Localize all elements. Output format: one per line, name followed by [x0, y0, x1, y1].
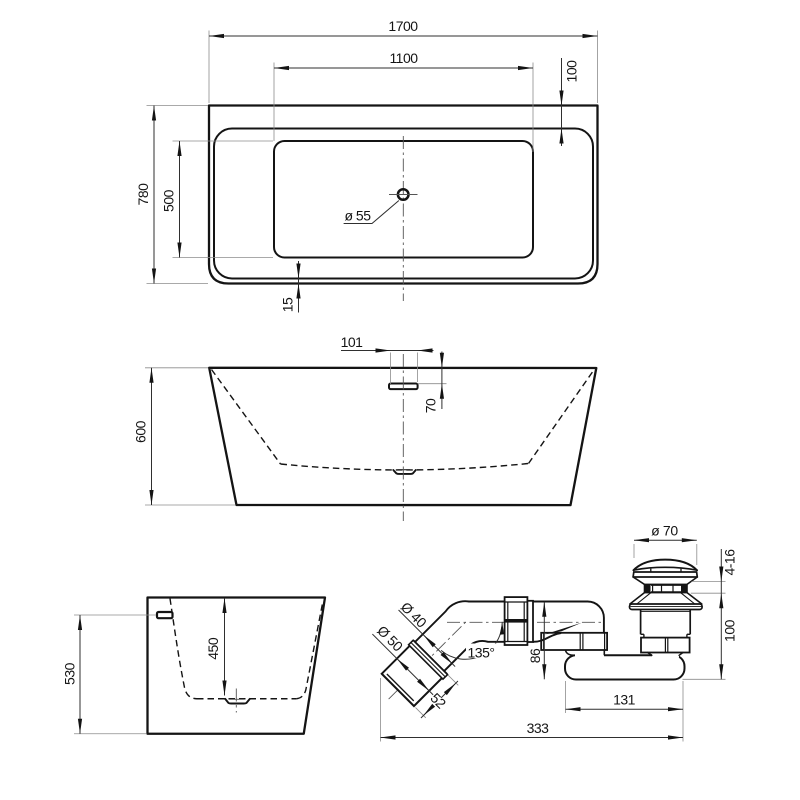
svg-text:780: 780	[135, 183, 151, 206]
svg-text:15: 15	[280, 297, 296, 312]
svg-text:333: 333	[527, 720, 550, 736]
svg-text:500: 500	[161, 189, 177, 212]
svg-text:450: 450	[205, 637, 221, 660]
svg-text:ø 70: ø 70	[651, 523, 678, 539]
svg-text:100: 100	[564, 60, 580, 83]
svg-text:1100: 1100	[389, 50, 418, 66]
svg-text:ø 55: ø 55	[344, 208, 371, 224]
svg-text:4-16: 4-16	[721, 549, 737, 576]
svg-text:530: 530	[62, 662, 78, 685]
svg-text:101: 101	[341, 334, 364, 350]
svg-text:70: 70	[423, 398, 439, 413]
svg-text:100: 100	[721, 619, 737, 642]
svg-text:600: 600	[133, 420, 149, 443]
svg-text:135°: 135°	[468, 645, 495, 661]
svg-text:86: 86	[527, 648, 543, 663]
svg-text:131: 131	[613, 692, 636, 708]
svg-text:1700: 1700	[388, 18, 418, 34]
